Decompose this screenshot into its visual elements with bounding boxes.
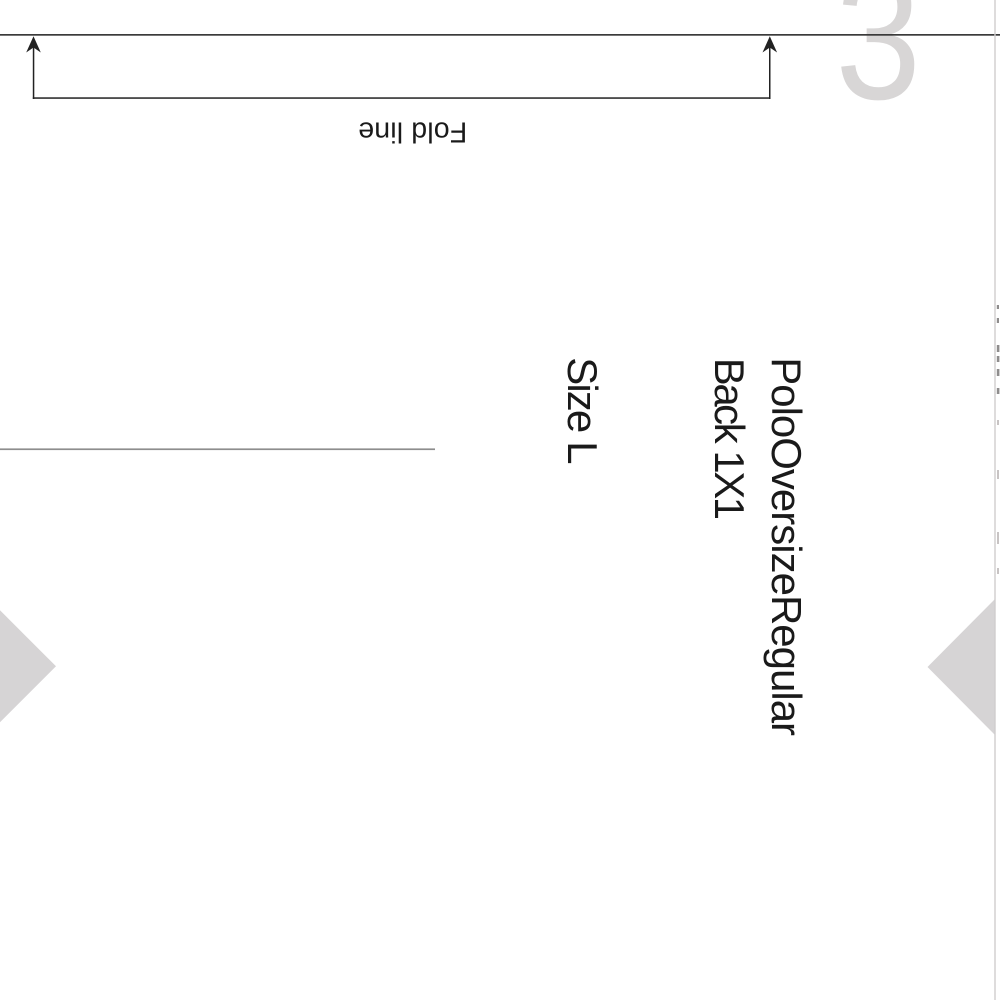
svg-text:Size L: Size L — [559, 357, 606, 463]
svg-text:3: 3 — [835, 0, 921, 137]
svg-text:PoloOversizeRegular: PoloOversizeRegular — [763, 357, 810, 736]
svg-text:Back 1X1: Back 1X1 — [706, 358, 753, 519]
svg-text:Fold line: Fold line — [358, 116, 467, 148]
